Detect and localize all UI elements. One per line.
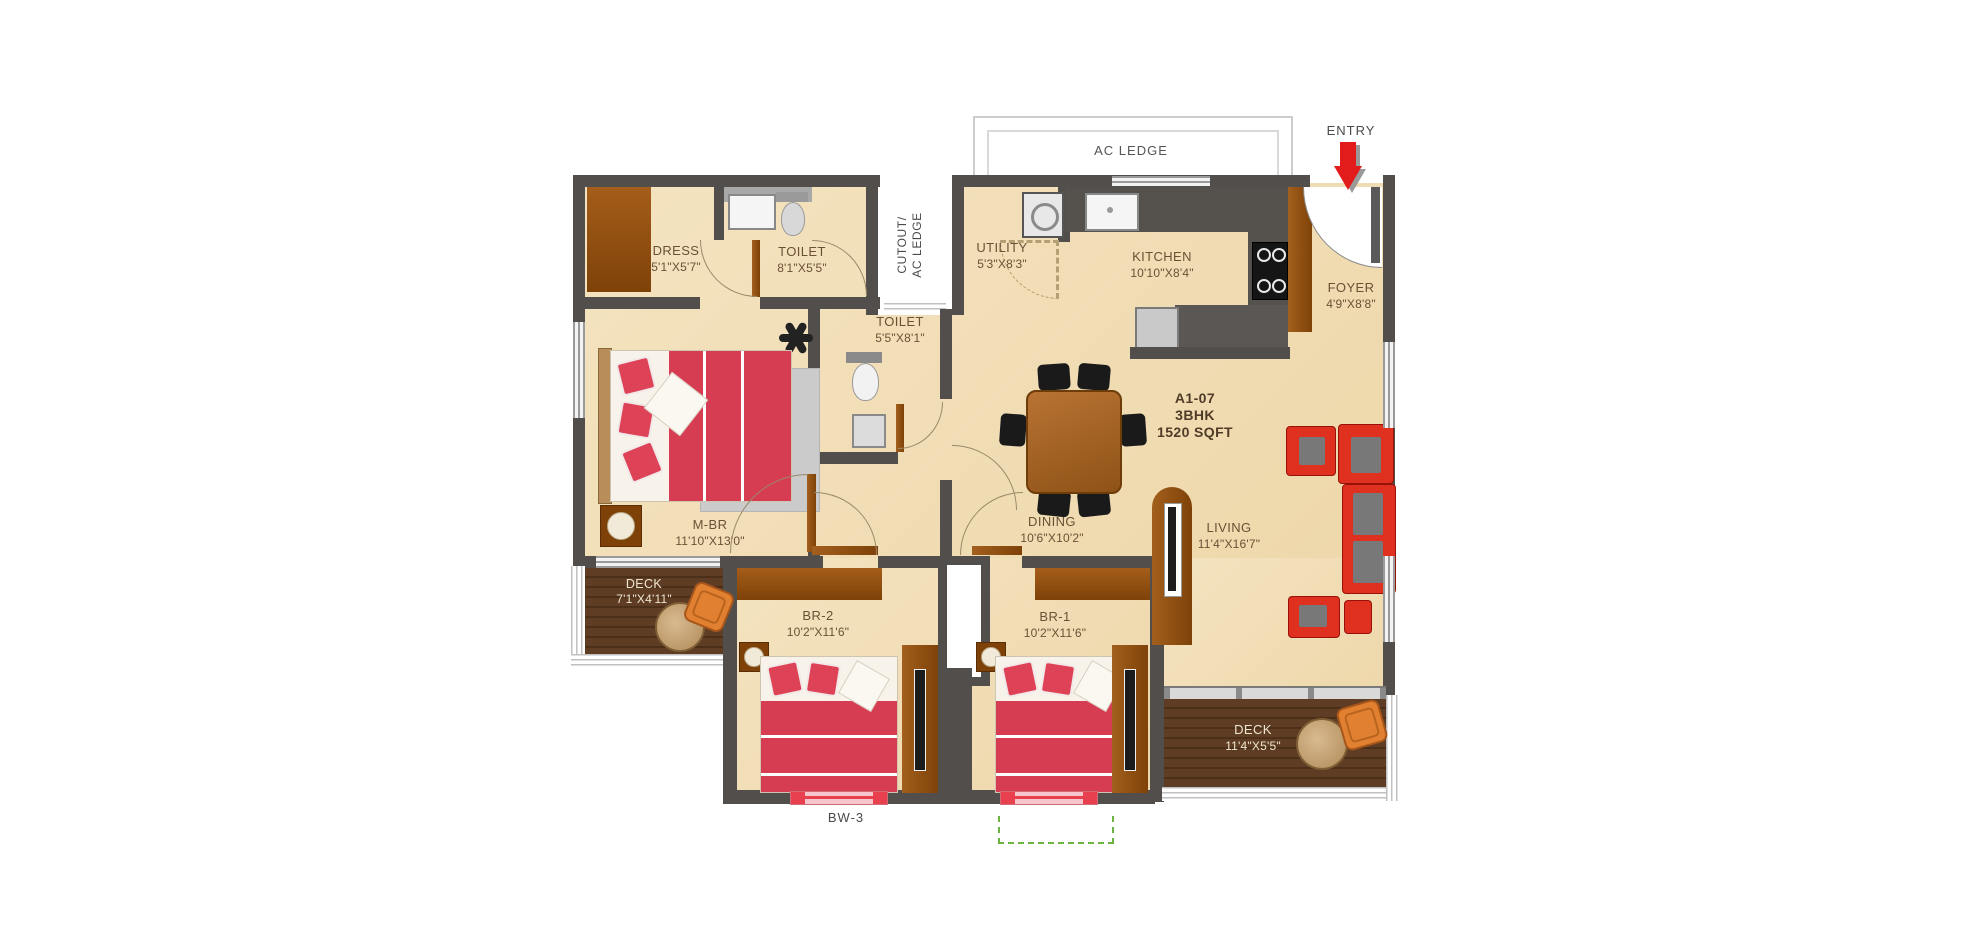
room-name: UTILITY [942, 239, 1062, 256]
pillow-icon [620, 440, 664, 484]
ac-ledge-label: AC LEDGE [975, 143, 1287, 158]
deck1-frame-bottom [571, 654, 723, 668]
window [1383, 342, 1395, 428]
sink-drain-icon [1107, 207, 1113, 213]
room-label-deck2: DECK 11'4"X5'5" [1183, 721, 1323, 755]
room-dims: 10'2"X11'6" [995, 625, 1115, 642]
br1-wardrobe [1035, 568, 1150, 600]
wall [808, 452, 898, 464]
room-name: BR-2 [758, 607, 878, 624]
mbr-bedside-table [600, 505, 642, 547]
pillow-icon [615, 355, 656, 396]
wall [866, 187, 878, 315]
armchair-icon [1288, 596, 1340, 638]
pillow-icon [1001, 660, 1039, 698]
br2-tv-unit [902, 645, 938, 793]
cushion [1351, 437, 1381, 473]
cushion [1299, 605, 1327, 627]
unit-type: 3BHK [1135, 407, 1255, 424]
room-dims: 11'4"X5'5" [1183, 738, 1323, 755]
room-label-living: LIVING 11'4"X16'7" [1166, 519, 1292, 553]
deck2-frame-right [1386, 695, 1400, 801]
room-label-mbr: M-BR 11'10"X13'0" [650, 516, 770, 550]
burner-icon [1257, 248, 1271, 262]
dining-chair-icon [999, 413, 1027, 447]
pillow-icon [766, 660, 804, 698]
window-marker-line [1015, 796, 1083, 799]
room-name: DRESS [616, 242, 736, 259]
wall [573, 175, 880, 187]
br2-bed-blanket [761, 701, 897, 792]
room-name: FOYER [1293, 279, 1409, 296]
chair-seat [1343, 706, 1380, 743]
room-dims: 10'10"X8'4" [1102, 265, 1222, 282]
room-dims: 11'10"X13'0" [650, 533, 770, 550]
fridge-icon [1135, 307, 1179, 351]
bedside-lamp-icon [607, 512, 635, 540]
pillow-icon [1040, 661, 1077, 698]
room-label-toilet1: TOILET 8'1"X5'5" [742, 243, 862, 277]
room-label-foyer: FOYER 4'9"X8'8" [1293, 279, 1409, 313]
wall [940, 480, 952, 556]
tv-unit [1152, 487, 1192, 645]
toilet1-commode-icon [781, 202, 805, 236]
toilet2-sink-icon [852, 414, 886, 448]
room-name: BR-1 [995, 608, 1115, 625]
bw-label: BW-3 [810, 810, 882, 825]
toilet1-sink-icon [728, 194, 776, 230]
pillow-icon [805, 661, 842, 698]
arrow-shaft [1340, 142, 1356, 168]
cushion [1353, 541, 1383, 583]
room-name: DECK [1183, 721, 1323, 738]
dining-table-icon [1026, 390, 1122, 494]
wall [714, 187, 724, 240]
room-label-kitchen: KITCHEN 10'10"X8'4" [1102, 248, 1222, 282]
room-dims: 5'3"X8'3" [942, 256, 1062, 273]
room-dims: 10'6"X10'2" [992, 530, 1112, 547]
window [1383, 556, 1395, 642]
room-label-br1: BR-1 10'2"X11'6" [995, 608, 1115, 642]
room-name: TOILET [840, 313, 960, 330]
room-dims: 7'1"X4'11" [588, 592, 700, 607]
room-name: LIVING [1166, 519, 1292, 536]
stove-icon [1252, 242, 1288, 300]
washer-drum-icon [1031, 203, 1059, 231]
room-dims: 11'4"X16'7" [1166, 536, 1292, 553]
unit-info: A1-07 3BHK 1520 SQFT [1135, 390, 1255, 441]
window-marker-line [805, 796, 873, 799]
br2-wardrobe [737, 568, 882, 600]
burner-icon [1257, 279, 1271, 293]
room-dims: 5'5"X8'1" [840, 330, 960, 347]
window [1112, 176, 1210, 186]
wall [878, 556, 940, 568]
room-name: KITCHEN [1102, 248, 1222, 265]
balcony-extension-marker [998, 816, 1114, 844]
mbr-bed [610, 350, 792, 502]
armchair-icon [1286, 426, 1336, 476]
arrow-head [1334, 166, 1362, 190]
sofa-corner-icon [1338, 424, 1394, 484]
entry-label: ENTRY [1309, 123, 1393, 138]
room-label-deck1: DECK 7'1"X4'11" [588, 577, 700, 607]
unit-area: 1520 SQFT [1135, 424, 1255, 441]
side-table-icon [1344, 600, 1372, 634]
br2-bed [760, 656, 898, 793]
room-dims: 5'1"X5'7" [616, 259, 736, 276]
kitchen-lower-counter [1175, 305, 1288, 347]
room-label-toilet2: TOILET 5'5"X8'1" [840, 313, 960, 347]
dress-wardrobe [587, 187, 651, 292]
kitchen-counter-edge [1130, 347, 1290, 359]
toilet2-commode-icon [852, 363, 879, 401]
toilet2-cistern-icon [846, 352, 882, 363]
toilet1-cistern-icon [776, 192, 808, 202]
br2-window-marker [790, 791, 888, 805]
window [573, 322, 585, 418]
room-label-dining: DINING 10'6"X10'2" [992, 513, 1112, 547]
tv-icon [1124, 669, 1136, 771]
cutout-label-line1: CUTOUT/ [895, 185, 910, 305]
cutout-label: CUTOUT/ AC LEDGE [895, 185, 935, 305]
wall [585, 297, 700, 309]
window [596, 556, 720, 568]
room-name: DECK [588, 577, 700, 592]
cutout-label-line2: AC LEDGE [910, 185, 925, 305]
unit-code: A1-07 [1135, 390, 1255, 407]
dining-chair-icon [1037, 363, 1071, 391]
kitchen-sink-icon [1085, 193, 1139, 231]
br1-tv-unit [1112, 645, 1148, 793]
room-name: M-BR [650, 516, 770, 533]
deck1-frame-left [571, 566, 585, 668]
room-label-br2: BR-2 10'2"X11'6" [758, 607, 878, 641]
burner-icon [1272, 248, 1286, 262]
wall [938, 668, 972, 802]
dining-chair-icon [1077, 363, 1111, 392]
deck2-frame-bottom [1162, 787, 1398, 801]
entry-arrow-icon [1332, 142, 1380, 200]
room-name: TOILET [742, 243, 862, 260]
br1-window-marker [1000, 791, 1098, 805]
room-label-dress: DRESS 5'1"X5'7" [616, 242, 736, 276]
room-dims: 10'2"X11'6" [758, 624, 878, 641]
cushion [1353, 493, 1383, 535]
cushion [1299, 437, 1325, 465]
burner-icon [1272, 279, 1286, 293]
room-name: DINING [992, 513, 1112, 530]
room-label-utility: UTILITY 5'3"X8'3" [942, 239, 1062, 273]
room-dims: 4'9"X8'8" [1293, 296, 1409, 313]
floor-plan: AC LEDGE CUTOUT/ AC LEDGE [0, 0, 1980, 938]
wall [760, 297, 880, 309]
washing-machine-icon [1022, 192, 1064, 238]
wall [1022, 556, 1152, 568]
tv-icon [914, 669, 926, 771]
room-dims: 8'1"X5'5" [742, 260, 862, 277]
